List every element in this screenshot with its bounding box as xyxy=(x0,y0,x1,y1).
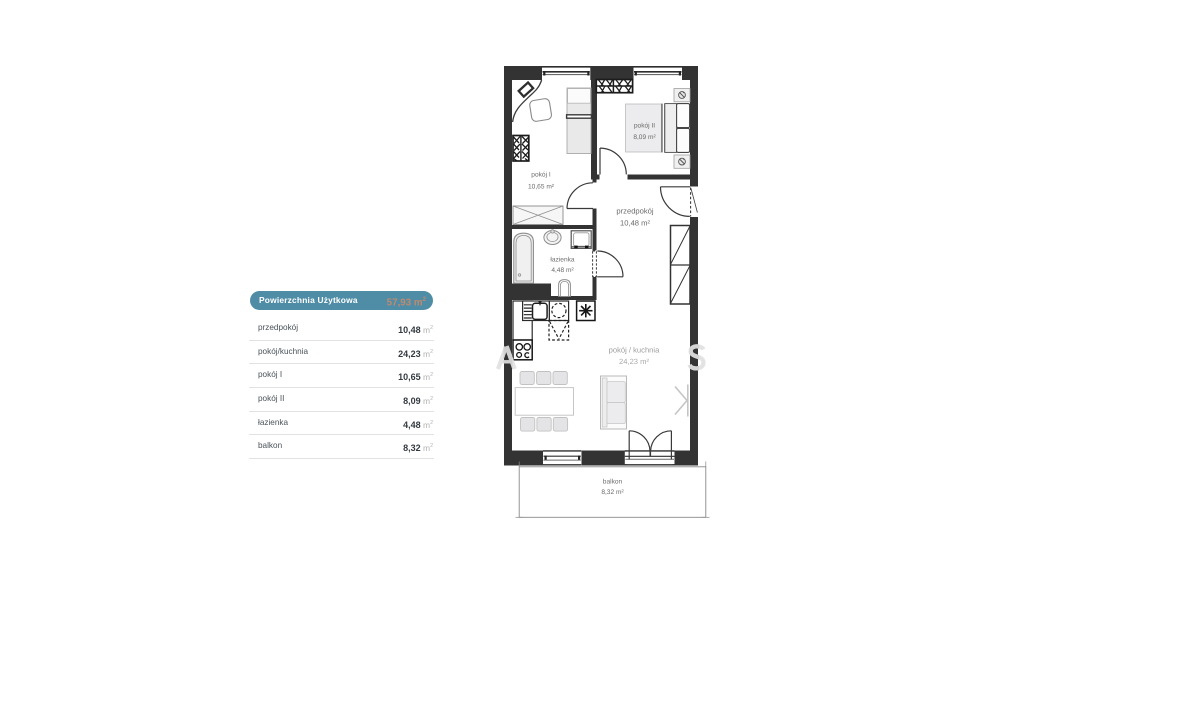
svg-text:4,48 m²: 4,48 m² xyxy=(551,267,574,274)
svg-text:łazienka: łazienka xyxy=(550,257,575,264)
svg-text:przedpokój: przedpokój xyxy=(616,207,653,216)
svg-text:10,65 m²: 10,65 m² xyxy=(528,184,555,191)
svg-text:pokój II: pokój II xyxy=(634,123,655,130)
svg-text:10,48 m²: 10,48 m² xyxy=(620,219,650,228)
svg-text:24,23 m²: 24,23 m² xyxy=(619,357,649,366)
svg-text:8,09 m²: 8,09 m² xyxy=(633,134,656,141)
svg-text:pokój I: pokój I xyxy=(531,172,551,179)
svg-text:8,32 m²: 8,32 m² xyxy=(601,489,624,496)
svg-text:pokój / kuchnia: pokój / kuchnia xyxy=(609,346,660,355)
svg-text:balkon: balkon xyxy=(603,479,623,486)
